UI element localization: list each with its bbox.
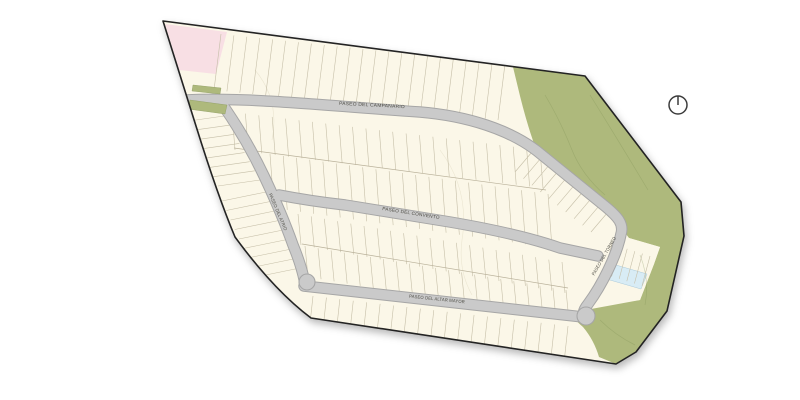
site-plan-map: PASEO DEL CAMPANARIO PASEO DEL CONVENTO … <box>0 0 800 400</box>
site-plan-canvas: PASEO DEL CAMPANARIO PASEO DEL CONVENTO … <box>0 0 800 400</box>
cul-de-sac-southwest <box>299 274 315 290</box>
parcel-pink <box>165 24 227 74</box>
cul-de-sac-southeast <box>577 307 595 325</box>
north-compass-icon <box>669 96 687 114</box>
subdivision-site: PASEO DEL CAMPANARIO PASEO DEL CONVENTO … <box>163 21 684 372</box>
